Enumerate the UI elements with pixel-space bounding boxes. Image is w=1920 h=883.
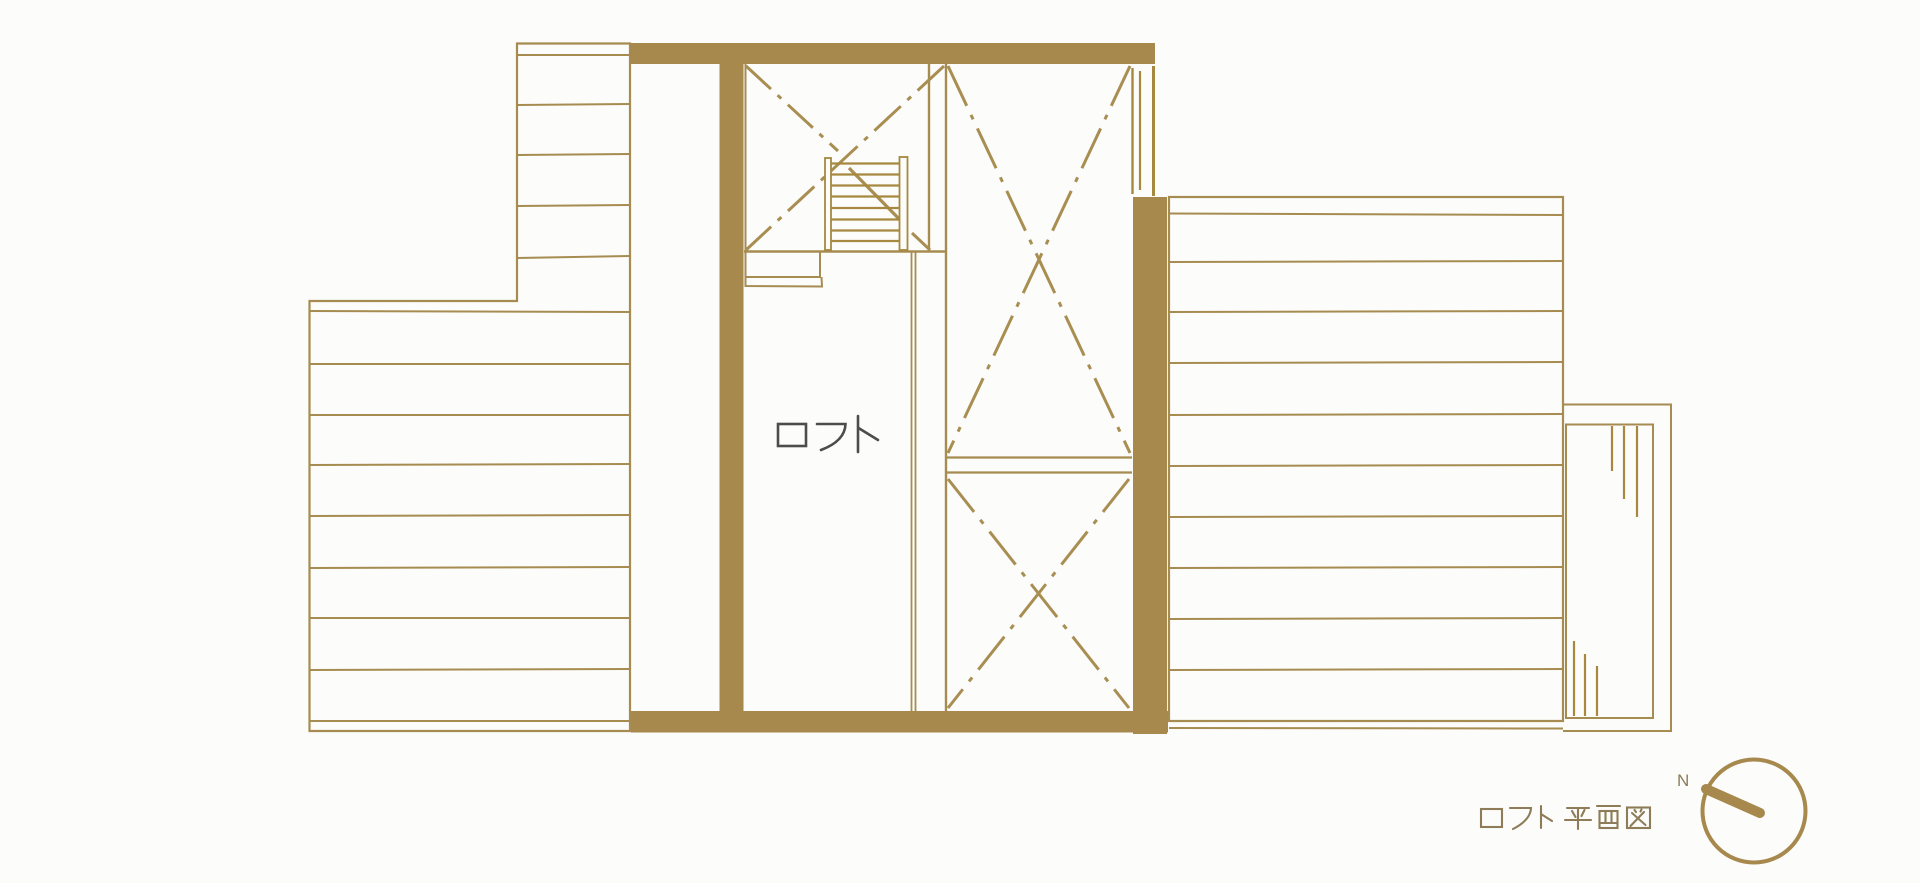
svg-text:N: N	[1677, 771, 1689, 790]
